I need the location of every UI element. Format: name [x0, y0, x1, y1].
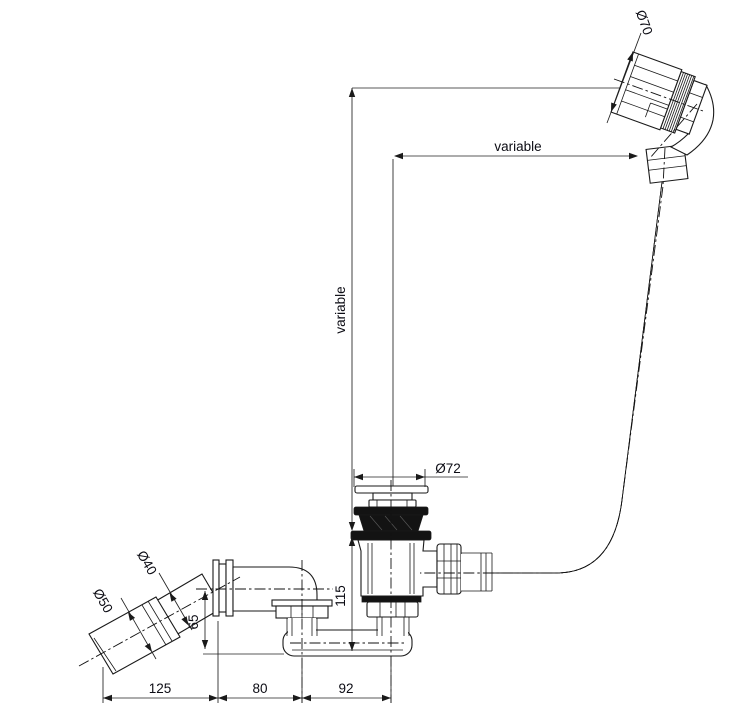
dim-92-label: 92	[338, 681, 353, 696]
waste-cap	[355, 486, 428, 493]
dim-115-label: 115	[333, 585, 348, 607]
waste-body	[358, 540, 437, 596]
waste-cap-stem	[373, 493, 412, 500]
dim-dia40-label: Ø40	[134, 548, 160, 578]
technical-drawing-page: variable 115 65 variable Ø70	[0, 0, 750, 722]
overflow-fitting	[611, 52, 714, 155]
bath-waste-overflow-drawing: variable 115 65 variable Ø70	[0, 0, 750, 722]
dim-vertical-variable-label: variable	[333, 286, 348, 333]
bath-waste-fitting	[351, 486, 492, 636]
dim-80-label: 80	[252, 681, 267, 696]
hose-outline	[493, 182, 662, 573]
waste-slip-nut	[367, 602, 418, 617]
dim-65-label: 65	[186, 614, 201, 629]
waste-cap-ring	[369, 500, 416, 507]
dimension-horizontal-variable: variable	[393, 139, 638, 486]
dim-dia72-label: Ø72	[435, 461, 461, 476]
dim-dia50-label: Ø50	[90, 586, 116, 616]
dimension-vertical-variable: variable	[333, 88, 620, 531]
dim-dia70-label: Ø70	[633, 8, 656, 37]
flexible-overflow-hose	[492, 145, 688, 573]
hose-corrugation-texture	[493, 182, 662, 573]
hose-centerline	[420, 148, 665, 573]
hose-body	[493, 182, 662, 573]
dim-horizontal-variable-label: variable	[494, 139, 541, 154]
dimension-dia72: Ø72	[354, 461, 468, 487]
joint-flange-left	[213, 560, 219, 616]
joint-flange-right	[226, 560, 233, 616]
dim-125-label: 125	[149, 681, 172, 696]
